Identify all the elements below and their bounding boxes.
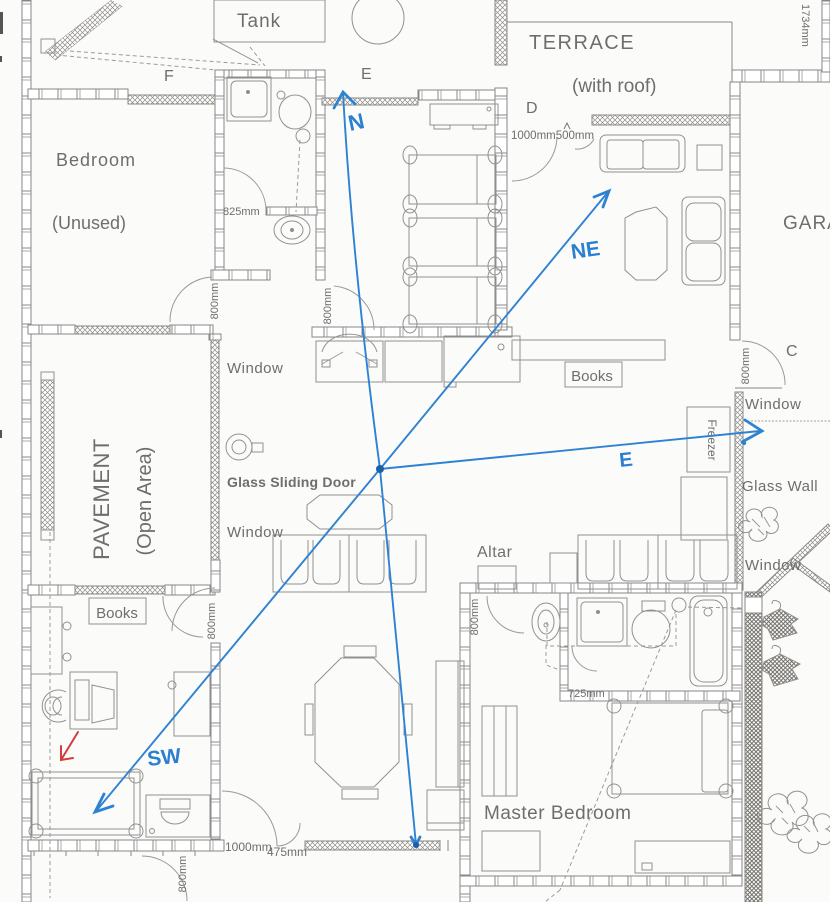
svg-text:(Unused): (Unused) [52,213,126,233]
svg-text:Glass Wall: Glass Wall [742,478,818,495]
svg-text:475mm: 475mm [267,845,307,859]
svg-text:825mm: 825mm [223,206,260,218]
svg-text:E: E [361,66,372,83]
svg-text:(with roof): (with roof) [572,76,656,97]
svg-text:D: D [526,100,538,117]
svg-text:Window: Window [227,524,283,541]
svg-text:TERRACE: TERRACE [529,32,635,54]
svg-text:GARA: GARA [783,213,830,234]
svg-text:Master Bedroom: Master Bedroom [484,803,631,824]
svg-text:800mm: 800mm [209,283,221,320]
svg-text:800mm: 800mm [177,856,189,893]
svg-text:Tank: Tank [237,11,281,32]
svg-text:Glass Sliding Door: Glass Sliding Door [227,474,356,490]
svg-text:Bedroom: Bedroom [56,150,136,170]
svg-text:800mm: 800mm [206,603,218,640]
svg-text:(Open Area): (Open Area) [134,447,156,556]
svg-text:PAVEMENT: PAVEMENT [89,438,114,560]
svg-text:800mm: 800mm [469,599,481,636]
svg-text:Window: Window [745,557,801,574]
svg-text:Altar: Altar [477,544,513,561]
svg-text:800mm: 800mm [322,288,334,325]
svg-text:1000mm500mm: 1000mm500mm [511,130,594,142]
svg-text:E: E [618,449,634,472]
svg-text:Books: Books [96,605,138,622]
svg-text:Window: Window [227,360,283,377]
svg-text:1000mm: 1000mm [225,840,272,854]
svg-text:F: F [164,68,174,85]
svg-text:SW: SW [146,745,182,771]
svg-text:1734mm: 1734mm [799,4,811,47]
svg-text:Freezer: Freezer [705,419,719,460]
svg-text:C: C [786,343,798,360]
svg-text:Books: Books [571,368,613,385]
svg-text:NE: NE [569,237,601,264]
svg-text:800mm: 800mm [740,348,752,385]
svg-text:Window: Window [745,396,801,413]
svg-text:725mm: 725mm [568,688,605,700]
